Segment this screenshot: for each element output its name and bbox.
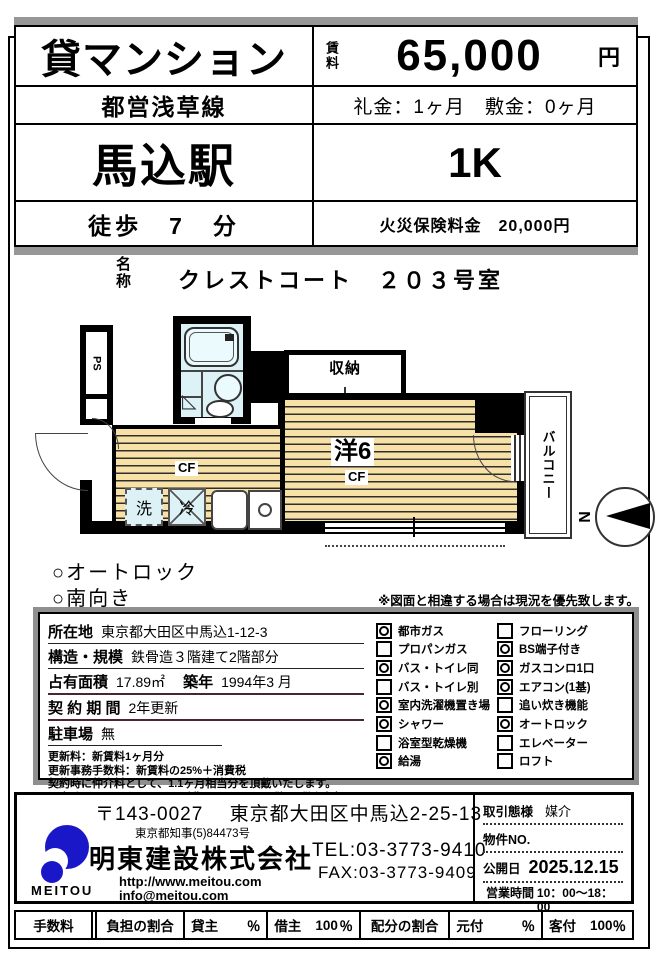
company-info-box: 〒143-0027 東京都大田区中馬込2-25-13 MEITOU 東京都知事(… <box>14 792 634 904</box>
pipe-space-inner2 <box>86 399 107 419</box>
contract-value: 2年更新 <box>129 698 179 718</box>
structure-value: 鉄骨造３階建て2階部分 <box>131 647 279 667</box>
contract-row: 契 約 期 間 2年更新 <box>48 695 364 721</box>
tenant-value: 100 <box>315 918 338 933</box>
checkbox-item: シャワー <box>376 716 497 733</box>
lessor-pct: ％ <box>247 915 261 935</box>
checkbox-label: バス・トイレ別 <box>398 679 479 695</box>
header-table: 貸マンション 賃料 65,000 円 都営浅草線 礼金：1ヶ月 敷金：0ヶ月 馬… <box>14 25 638 247</box>
sliding-window <box>325 521 505 534</box>
tenant-cell: 借主100％ <box>268 912 361 938</box>
fee-cell: 手数料 <box>16 912 93 938</box>
company-website: http://www.meitou.com <box>119 874 262 889</box>
balcony-label: バルコニー <box>539 430 558 500</box>
checkbox-icon <box>497 735 513 751</box>
corner-mark: ◺ <box>182 392 197 411</box>
moto-label: 元付 <box>456 915 483 935</box>
checkbox-item: プロパンガス <box>376 641 497 658</box>
structure-label: 構造・規模 <box>48 646 123 667</box>
deal-type-row: 取引態様 媒介 <box>483 800 623 825</box>
kyaku-value: 100 <box>590 918 613 933</box>
entry-door-arc <box>35 433 88 491</box>
location-value: 東京都大田区中馬込1-12-3 <box>101 622 267 642</box>
property-details-box: 所在地 東京都大田区中馬込1-12-3 構造・規模 鉄骨造３階建て2階部分 占有… <box>38 612 634 780</box>
checkbox-item: バス・トイレ同 <box>376 659 497 676</box>
amenities-checkbox-grid: 都市ガス フローリング プロパンガス BS端子付き バス・トイレ同 ガスコンロ1… <box>364 619 624 773</box>
parking-value: 無 <box>101 724 115 744</box>
north-letter: N <box>577 511 595 523</box>
building-name-value: クレストコート ２０３号室 <box>178 263 503 295</box>
checkbox-label: 追い炊き機能 <box>519 697 588 713</box>
fee-label: 手数料 <box>33 915 74 935</box>
checkbox-icon <box>497 623 513 639</box>
property-no-label: 物件NO. <box>483 829 530 848</box>
room-cf-label: CF <box>345 470 368 485</box>
station-name: 馬込駅 <box>92 130 236 196</box>
checkbox-icon <box>376 623 392 639</box>
bathroom-interior: ◺ <box>181 324 243 417</box>
bath-divider <box>201 370 203 417</box>
checkbox-item: 追い炊き機能 <box>497 697 624 714</box>
kyaku-cell: 客付100％ <box>543 912 632 938</box>
parking-label: 駐車場 <box>48 723 93 744</box>
lessor-label: 貸主 <box>191 915 218 935</box>
fridge-space: 冷 <box>168 488 206 526</box>
building-name-label: 名称 <box>112 256 133 290</box>
company-logo-icon <box>35 825 93 883</box>
kitchen-cf-label: CF <box>175 461 198 476</box>
checkbox-icon <box>376 660 392 676</box>
deal-type-value: 媒介 <box>545 801 571 820</box>
toilet-icon <box>206 400 234 418</box>
moto-cell: 元付％ <box>450 912 543 938</box>
tenant-label: 借主 <box>274 915 301 935</box>
floor-plan: PS ◺ 収納 バルコニー 洋6 CF CF 洗 冷 N <box>35 305 653 567</box>
room-layout: 1K <box>448 139 502 187</box>
checkbox-label: シャワー <box>398 716 444 732</box>
wall <box>475 399 518 433</box>
built-label: 築年 <box>183 671 213 692</box>
key-money-deposit: 礼金：1ヶ月 敷金：0ヶ月 <box>353 92 596 119</box>
checkbox-label: ガスコンロ1口 <box>519 660 594 676</box>
checkbox-label: エアコン(1基) <box>519 679 591 695</box>
checkbox-icon <box>376 735 392 751</box>
room-size-label: 洋6 <box>331 438 374 466</box>
checkbox-item: ガスコンロ1口 <box>497 659 624 676</box>
checkbox-item: 室内洗濯機置き場 <box>376 697 497 714</box>
moto-pct: ％ <box>521 915 535 935</box>
checkbox-item: エアコン(1基) <box>497 678 624 695</box>
company-email: info@meitou.com <box>119 888 228 903</box>
checkbox-icon <box>376 697 392 713</box>
company-address: 〒143-0027 東京都大田区中馬込2-25-13 <box>95 799 482 826</box>
rent-value: 65,000 <box>341 31 598 81</box>
parking-row: 駐車場 無 <box>48 721 222 746</box>
checkbox-item: フローリング <box>497 622 624 639</box>
note-line: 契約時に仲介料として、1.1ヶ月相当分を頂戴いたします。 <box>48 778 364 792</box>
window-tick <box>413 517 415 537</box>
publish-date-value: 2025.12.15 <box>529 857 619 878</box>
checkbox-icon <box>376 679 392 695</box>
note-line: 更新事務手数料：新賃料の25%＋消費税 <box>48 765 364 779</box>
ps-label: PS <box>91 356 103 371</box>
checkbox-icon <box>376 716 392 732</box>
location-row: 所在地 東京都大田区中馬込1-12-3 <box>48 619 364 644</box>
lessor-cell: 貸主％ <box>185 912 268 938</box>
publish-date-label: 公開日 <box>483 858 521 877</box>
fire-insurance: 火災保険料金 20,000円 <box>380 212 571 236</box>
burden-label: 負担の割合 <box>106 915 174 935</box>
checkbox-item: オートロック <box>497 716 624 733</box>
checkbox-icon <box>497 697 513 713</box>
sink-icon <box>214 374 242 402</box>
checkbox-item: バス・トイレ別 <box>376 678 497 695</box>
alloc-label: 配分の割合 <box>371 915 439 935</box>
checkbox-item: 浴室型乾燥機 <box>376 734 497 751</box>
listing-meta-column: 取引態様 媒介 物件NO. 公開日 2025.12.15 営業時間 10：00～… <box>473 795 631 901</box>
checkbox-label: 浴室型乾燥機 <box>398 735 467 751</box>
bathroom: ◺ <box>173 316 251 424</box>
checkbox-icon <box>376 641 392 657</box>
tenant-pct: ％ <box>339 915 353 935</box>
location-label: 所在地 <box>48 621 93 642</box>
plan-disclaimer: ※図面と相違する場合は現況を優先致します。 <box>378 590 639 609</box>
kyaku-pct: ％ <box>613 915 627 935</box>
interior-door-arc <box>92 418 119 449</box>
checkbox-icon <box>497 753 513 769</box>
closet-label: 収納 <box>329 357 361 378</box>
checkbox-icon <box>497 660 513 676</box>
north-compass: N <box>595 487 655 547</box>
checkbox-item: 給湯 <box>376 753 497 770</box>
burden-cell: 負担の割合 <box>97 912 185 938</box>
feature-south-facing: ○南向き <box>52 582 132 611</box>
company-tel: TEL:03-3773-9410 <box>312 840 486 862</box>
company-name: 明東建設株式会社 <box>89 839 313 876</box>
rent-unit: 円 <box>598 40 620 72</box>
area-row: 占有面積 17.89㎡ 築年 1994年3 月 <box>48 669 364 695</box>
washer-space: 洗 <box>125 488 163 526</box>
company-logo-text: MEITOU <box>31 883 93 898</box>
checkbox-icon <box>497 716 513 732</box>
checkbox-label: 給湯 <box>398 753 421 769</box>
checkbox-item: エレベーター <box>497 734 624 751</box>
publish-date-row: 公開日 2025.12.15 <box>483 856 623 883</box>
north-arrow-icon <box>606 503 650 529</box>
kyaku-label: 客付 <box>549 915 576 935</box>
property-no-row: 物件NO. <box>483 828 623 853</box>
checkbox-icon <box>497 641 513 657</box>
checkbox-item: BS端子付き <box>497 641 624 658</box>
checkbox-label: BS端子付き <box>519 641 581 657</box>
details-left-column: 所在地 東京都大田区中馬込1-12-3 構造・規模 鉄骨造３階建て2階部分 占有… <box>48 619 364 773</box>
checkbox-label: プロパンガス <box>398 641 468 657</box>
checkbox-label: フローリング <box>519 623 588 639</box>
commission-table: 手数料 負担の割合 貸主％ 借主100％ 配分の割合 元付％ 客付100％ <box>14 910 634 940</box>
checkbox-item: 都市ガス <box>376 622 497 639</box>
fridge-label: 冷 <box>179 495 195 519</box>
feature-autolock: ○オートロック <box>52 556 198 585</box>
area-label: 占有面積 <box>48 671 108 692</box>
structure-row: 構造・規模 鉄骨造３階建て2階部分 <box>48 644 364 669</box>
bathroom-door-opening <box>195 418 231 424</box>
balcony: バルコニー <box>524 391 572 539</box>
kitchen-sink-icon <box>211 490 248 530</box>
walk-minutes: 徒歩 7 分 <box>88 207 240 241</box>
checkbox-label: エレベーター <box>519 735 588 751</box>
checkbox-icon <box>497 679 513 695</box>
property-type: 貸マンション <box>41 27 287 85</box>
faucet-icon <box>225 334 234 341</box>
pipe-space: PS <box>80 325 113 425</box>
checkbox-label: ロフト <box>519 753 554 769</box>
contract-label: 契 約 期 間 <box>48 697 121 718</box>
checkbox-label: オートロック <box>519 716 588 732</box>
checkbox-label: 室内洗濯機置き場 <box>398 697 490 713</box>
bathtub-icon <box>184 327 239 367</box>
area-value: 17.89㎡ <box>116 672 165 692</box>
checkbox-label: 都市ガス <box>398 623 444 639</box>
stove-icon <box>248 490 282 530</box>
rent-label: 賃料 <box>322 41 341 71</box>
bath-divider <box>181 370 243 372</box>
company-fax: FAX:03-3773-9409 <box>318 863 477 883</box>
washer-label: 洗 <box>136 495 152 519</box>
note-line: 更新料：新賃料1ヶ月分 <box>48 751 364 765</box>
train-line: 都営浅草線 <box>102 88 227 122</box>
checkbox-icon <box>376 753 392 769</box>
built-value: 1994年3 月 <box>221 672 292 692</box>
checkbox-item: ロフト <box>497 753 624 770</box>
balcony-boundary-dashes <box>325 545 505 547</box>
pipe-space-inner: PS <box>86 332 107 394</box>
alloc-cell: 配分の割合 <box>361 912 450 938</box>
deal-type-label: 取引態様 <box>483 801 533 820</box>
checkbox-label: バス・トイレ同 <box>398 660 479 676</box>
